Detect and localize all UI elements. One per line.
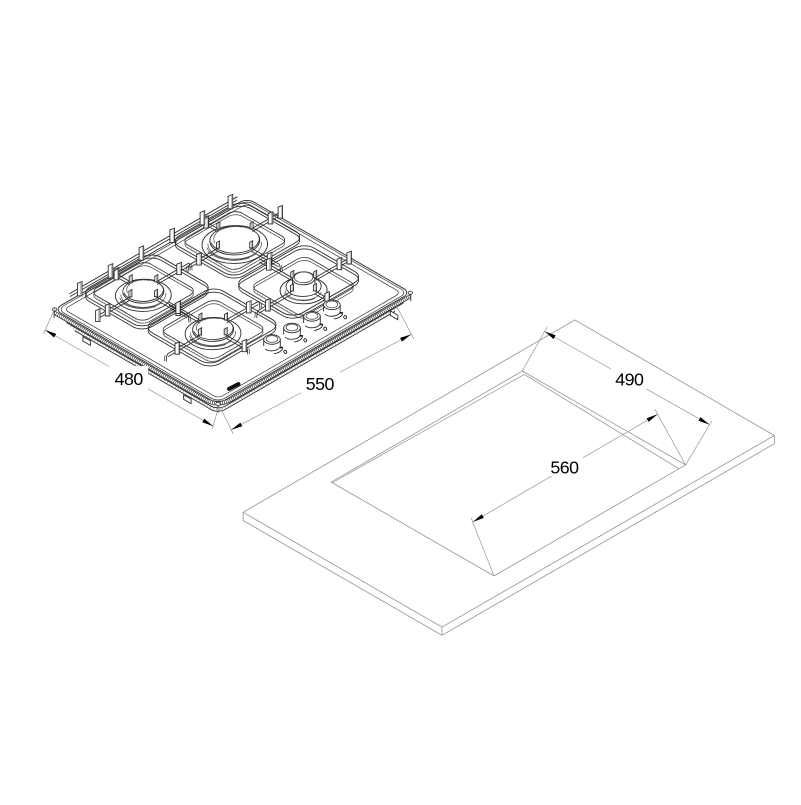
svg-text:560: 560 <box>550 458 579 478</box>
svg-text:480: 480 <box>115 369 144 389</box>
svg-text:550: 550 <box>306 374 335 394</box>
svg-text:490: 490 <box>615 369 644 389</box>
